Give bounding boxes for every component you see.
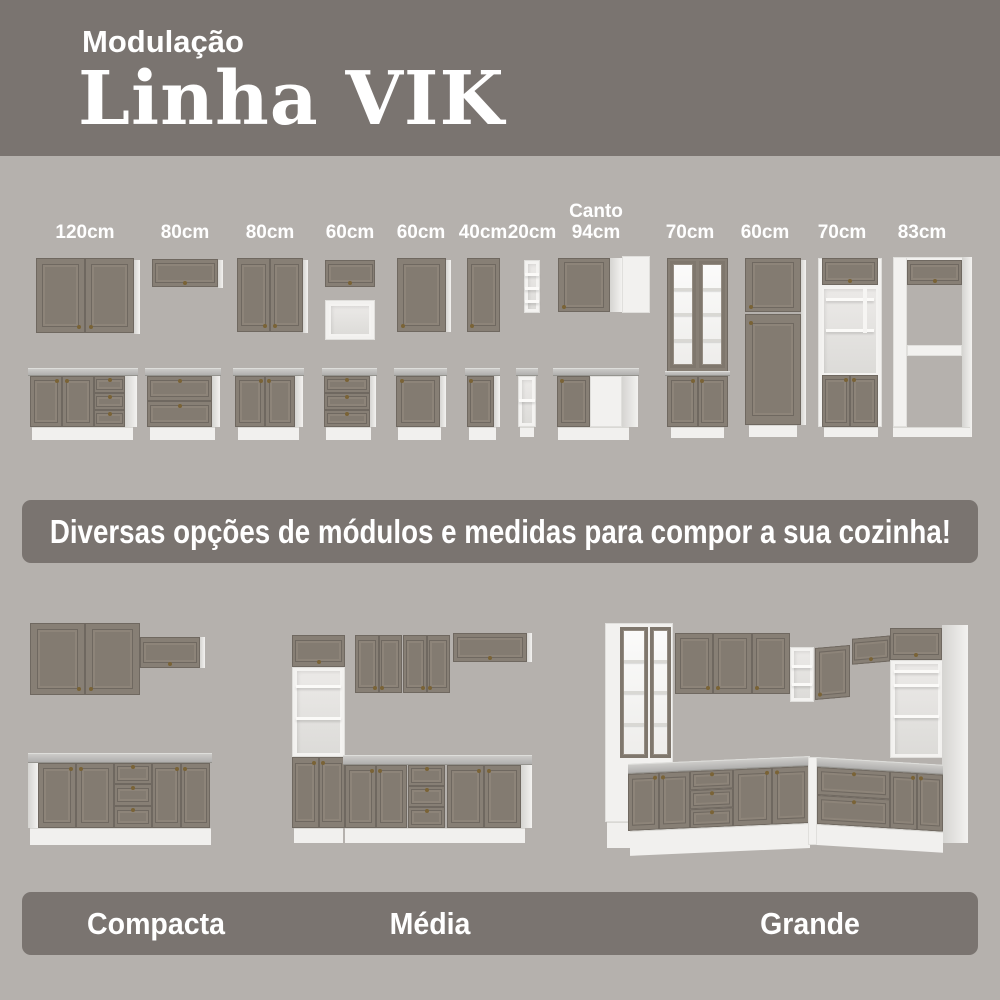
header: Modulação Linha VIK [0,0,1000,156]
shelf-line [525,273,539,276]
drawer [408,765,445,786]
shelf-line [792,665,813,668]
side-panel [295,376,303,427]
side-panel [942,625,968,843]
countertop [28,368,138,376]
door [447,765,484,828]
plinth [558,427,629,440]
plinth [398,427,441,440]
plinth [893,427,970,437]
door [917,773,943,832]
drawer [690,788,733,809]
grande-wall-open-shelf [790,647,814,702]
corner-seam-panel [808,757,817,845]
base-open-shelf-20cm [518,376,536,427]
tall-cabinet-70cm-glass [667,258,728,372]
kitchen-label-grande: Grande [760,906,860,942]
shelf-line [296,685,342,688]
door [484,765,521,828]
door [379,635,403,693]
door [752,633,790,694]
glass-door [670,261,696,368]
side-panel [622,376,638,427]
grande-tower-flap [890,628,942,660]
shelf-line [894,684,940,687]
side-panel [801,260,806,425]
side-panel [212,376,220,427]
media-wall-flap [453,633,527,662]
drawer [94,410,125,427]
shelf-line [296,717,342,720]
plinth [824,427,878,437]
corner-angled-panel [610,258,622,312]
media-wall-cabinet [403,635,450,693]
corner-base-white-door [590,376,622,427]
shelf-line [624,723,644,726]
door [85,623,140,695]
door [62,376,94,427]
door [628,773,659,831]
compacta-wall-flap [140,637,200,668]
shelf-line [703,288,721,291]
glass-door [620,627,648,758]
side-panel [446,260,451,332]
open-interior [792,649,812,700]
door [237,258,270,332]
door [850,375,878,427]
shelf-line [674,313,692,316]
flap-door [907,260,962,285]
module-label-60cm-a: 60cm [326,222,375,244]
tall-83cm-left-frame [893,257,907,427]
plinth [32,427,133,440]
module-label-60cm-b: 60cm [397,222,446,244]
module-label-60cm-tall: 60cm [741,222,790,244]
drawer [324,376,370,393]
shelf-line [654,660,668,663]
door [265,376,295,427]
shelf-line [519,399,535,402]
door [30,623,85,695]
canto-label-line2: 94cm [569,222,623,243]
shelf-line [674,288,692,291]
door [181,763,210,828]
grande-corner-wall-group [815,635,890,702]
door [890,771,917,830]
door [76,763,114,828]
shelf-line [703,313,721,316]
shelf-line [525,300,539,303]
media-tower-open [292,667,345,757]
door [467,376,494,427]
plinth [294,828,343,843]
side-panel [962,257,972,437]
countertop [465,368,500,376]
drawer [817,767,890,799]
corner-base-door [557,376,590,427]
door [396,376,440,427]
door [815,645,850,700]
kitchen-label-compacta: Compacta [87,906,225,942]
grande-base-left-run [628,756,810,856]
door [36,258,85,333]
drawer [94,376,125,393]
plinth [749,425,797,437]
wall-cabinet-60cm-door [397,258,446,332]
drawer [114,806,152,828]
message-banner: Diversas opções de módulos e medidas par… [22,500,978,563]
side-panel [200,637,205,668]
media-tower-flap [292,635,345,667]
drawer [408,807,445,828]
wall-corner-white-box [622,256,650,313]
shelf-line [894,715,940,718]
glass-door [699,261,725,368]
wall-cabinet-80cm [237,258,303,332]
door [822,375,850,427]
banner-text: Diversas opções de módulos e medidas par… [49,513,950,551]
countertop [233,368,304,376]
side-panel [125,376,137,427]
shelf-line [624,691,644,694]
module-label-40cm: 40cm [459,222,508,244]
shelf-line [624,660,644,663]
plinth [520,427,534,437]
side-panel [521,765,532,828]
countertop [28,753,212,763]
door [733,768,772,827]
door [675,633,713,694]
grande-base-right-run [817,757,943,853]
door [30,376,62,427]
vertical-divider [863,287,867,333]
kitchen-names-banner: Compacta Média Grande [22,892,978,955]
countertop [394,368,447,376]
plinth [345,828,525,843]
door [270,258,303,332]
flap-door [822,258,878,285]
module-label-20cm: 20cm [508,222,557,244]
shelf-line [894,670,940,673]
wall-open-shelf-20cm [524,260,540,313]
kitchen-label-media: Média [390,906,471,942]
tall-cabinet-60cm-upper-door [745,258,801,312]
door [376,765,407,828]
header-kicker: Modulação [82,24,244,60]
wall-cabinet-40cm-door [467,258,500,332]
plinth [30,828,211,845]
countertop [516,368,538,376]
drawer [147,376,212,401]
media-wall-cabinet [355,635,402,693]
module-label-70cm-tall-a: 70cm [666,222,715,244]
canto-label-line1: Canto [569,201,623,222]
shelf-line [703,339,721,342]
grande-tower-open [890,660,943,758]
tall-83cm-shelf-band [907,345,962,356]
door [292,757,319,828]
drawer [94,393,125,410]
side-panel [527,633,532,662]
module-label-70cm-tall-b: 70cm [818,222,867,244]
countertop [145,368,221,376]
grande-wall-run [675,633,790,694]
plinth [671,427,724,438]
door [85,258,134,333]
countertop [343,755,532,765]
drawer [690,769,733,790]
wall-corner-cabinet-door [558,258,610,312]
side-panel [218,260,223,288]
catalog-poster: Modulação Linha VIK 120cm 80cm 80cm 60cm… [0,0,1000,1000]
module-label-80cm-a: 80cm [161,222,210,244]
drawer [408,786,445,807]
door [427,635,451,693]
wall-niche-60cm [325,300,375,340]
countertop [322,368,377,376]
glass-door [650,627,671,758]
side-panel [303,260,308,333]
shelf-line [674,339,692,342]
side-panel [370,376,376,427]
door [152,763,181,828]
countertop [553,368,639,376]
open-interior [295,669,342,755]
door [345,765,376,828]
door [403,635,427,693]
door [667,376,698,427]
wall-cabinet-120cm [36,258,134,333]
open-interior [893,662,940,756]
tall-cabinet-70cm-tower [818,258,882,427]
door [698,376,729,427]
media-tower-base [292,757,345,828]
door [38,763,76,828]
shelf-line [654,691,668,694]
module-label-canto-94cm: Canto 94cm [569,201,623,243]
door [319,757,346,828]
shelf-line [792,683,813,686]
door [235,376,265,427]
shelf-line [525,287,539,290]
side-panel [440,376,446,427]
door [713,633,751,694]
shelf-line [654,723,668,726]
plinth [150,427,215,440]
door [659,771,690,829]
side-panel [494,376,500,427]
side-panel [28,763,38,828]
drawer [147,401,212,427]
wall-cabinet-80cm-flap [152,259,218,287]
tall-cabinet-60cm-lower-door [745,314,801,425]
tall-cabinet-70cm-glass-base [667,376,728,427]
drawer [817,795,890,828]
door [772,766,810,825]
drawer [324,410,370,427]
plinth [469,427,496,440]
plinth [238,427,299,440]
module-label-80cm-b: 80cm [246,222,295,244]
page-title: Linha VIK [78,56,505,142]
compacta-wall-cabinet [30,623,140,695]
door [355,635,379,693]
drawer [690,807,733,828]
side-panel [134,260,140,334]
drawer [114,763,152,784]
drawer [114,784,152,806]
module-label-120cm: 120cm [55,222,114,244]
module-label-83cm-tall: 83cm [898,222,947,244]
drawer [324,393,370,410]
plinth [326,427,371,440]
open-interior [329,304,371,336]
open-interior [822,287,878,375]
wall-cabinet-60cm-flap [325,260,375,287]
flap-door [852,635,890,664]
